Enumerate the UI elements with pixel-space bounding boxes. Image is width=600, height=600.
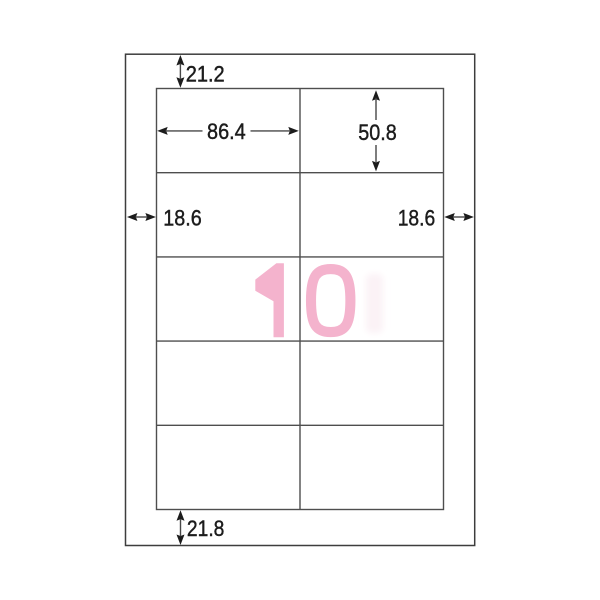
svg-text:18.6: 18.6: [398, 206, 436, 231]
svg-text:86.4: 86.4: [207, 119, 246, 144]
svg-text:18.6: 18.6: [163, 206, 202, 231]
svg-text:21.8: 21.8: [187, 516, 225, 541]
svg-text:21.2: 21.2: [186, 62, 225, 87]
svg-text:50.8: 50.8: [358, 120, 397, 145]
